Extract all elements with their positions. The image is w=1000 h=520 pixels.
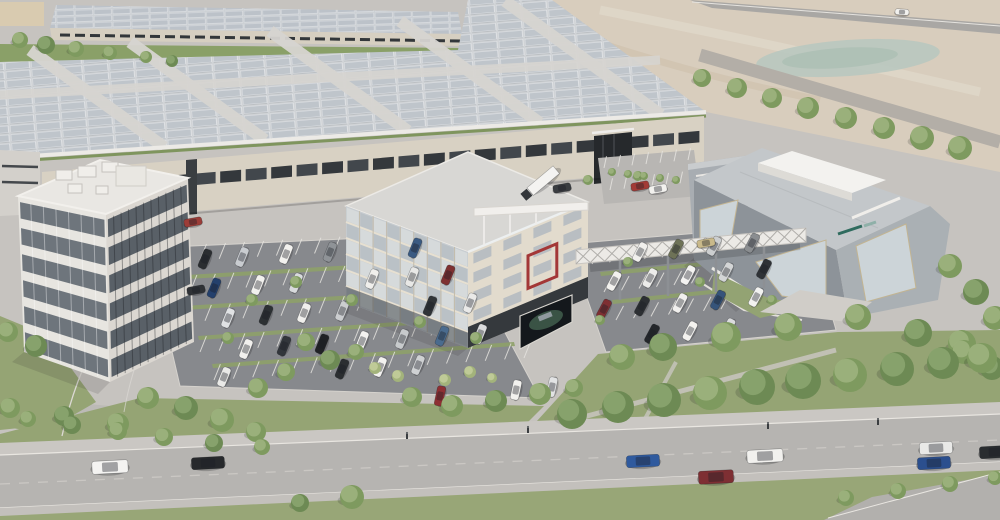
tree-highlight [608,168,614,174]
tree-highlight [640,172,646,178]
tree-highlight [911,127,928,144]
tree-highlight [558,400,579,421]
tree-highlight [166,55,174,63]
tree-highlight [278,363,291,376]
ribbon-window [297,163,318,176]
tree-highlight [989,471,999,481]
hvac-unit [78,166,96,177]
tree-highlight [650,334,670,354]
ribbon-window [551,142,572,155]
tree-highlight [767,295,774,302]
car-cabin [899,10,905,15]
tree-highlight [798,98,813,113]
tree-highlight [13,32,24,43]
tree-highlight [110,422,123,435]
tree-highlight [648,384,672,408]
tree-highlight [69,41,80,52]
tree-highlight [775,314,795,334]
ribbon-window [679,131,700,144]
campus-aerial-rendering: Aerial architectural rendering of an ind… [0,0,1000,520]
ribbon-window [246,168,267,181]
tree-highlight [222,332,230,340]
car-cabin [757,451,773,461]
tree-highlight [138,388,153,403]
pedestrian-head [406,432,408,434]
corner-annex-building [0,2,44,26]
tree-highlight [464,366,472,374]
car-cabin [636,456,651,465]
tree-highlight [610,345,628,363]
hvac-unit [96,186,108,194]
pedestrian-body [406,434,408,439]
tree-highlight [656,174,662,180]
car-cabin [102,462,118,472]
tree-highlight [740,370,765,395]
tree-highlight [583,175,590,182]
tree-highlight [712,323,733,344]
tree-highlight [298,333,311,346]
tree-highlight [487,373,494,380]
tree-highlight [349,344,360,355]
ribbon-window [399,155,420,168]
tree-highlight [249,379,263,393]
tree-highlight [26,336,41,351]
car-cabin [989,447,1000,456]
tree-highlight [928,348,950,370]
pedestrian-body [877,420,879,425]
tree-highlight [939,255,956,272]
tree-highlight [905,320,925,340]
tree-highlight [156,428,169,441]
pedestrian [406,432,408,439]
tree-highlight [891,483,902,494]
ribbon-window [220,170,241,183]
tree-highlight [292,494,305,507]
ribbon-window [322,161,343,174]
tree-highlight [964,280,982,298]
tree-highlight [246,294,254,302]
car-cabin [708,472,724,482]
ribbon-window [195,172,216,185]
tree-highlight [206,434,219,447]
tree-highlight [881,353,905,377]
ribbon-window [526,144,547,157]
tree-highlight [728,79,742,93]
tree-highlight [290,276,298,284]
pedestrian [767,422,769,429]
tree-highlight [595,315,602,322]
tree-highlight [38,36,51,49]
pedestrian-head [877,418,879,420]
tree-highlight [968,344,989,365]
tree [0,398,20,418]
tree-highlight [369,362,377,370]
tree-highlight [566,379,579,392]
pedestrian [877,418,879,425]
tree-highlight [442,396,457,411]
pedestrian-head [767,422,769,424]
tree-highlight [321,351,335,365]
tree-highlight [486,391,501,406]
tree-highlight [403,388,417,402]
tree-highlight [984,307,1000,324]
tree-highlight [64,416,77,429]
car [978,445,1000,461]
car-cabin [201,458,216,467]
tree-highlight [140,51,148,59]
pedestrian [527,426,529,433]
tree-highlight [21,411,32,422]
tree-highlight [104,46,114,56]
pedestrian-head [527,426,529,428]
ribbon-window [271,165,292,178]
tree-highlight [672,176,678,182]
car-cabin [927,458,942,467]
tree-highlight [623,257,630,264]
ribbon-window [500,146,521,159]
tree-highlight [695,277,702,284]
tree-highlight [839,490,850,501]
tree-highlight [943,476,954,487]
penthouse [116,166,146,186]
tree-highlight [1,399,15,413]
tree-highlight [470,332,478,340]
tree-highlight [694,377,718,401]
tree-highlight [255,439,266,450]
pedestrian-body [527,428,529,433]
tree-highlight [392,370,400,378]
tree-highlight [874,118,889,133]
tree-highlight [414,316,422,324]
car-cabin [929,443,944,452]
tree-highlight [603,392,625,414]
tree-highlight [834,359,858,383]
tree-highlight [836,108,851,123]
tree-highlight [846,305,864,323]
tree-highlight [694,69,707,82]
small-parking-lot [598,150,700,204]
tree-highlight [346,294,354,302]
hvac-unit [68,184,82,193]
ribbon-window [348,159,369,172]
tree-highlight [341,486,358,503]
tree-highlight [530,384,545,399]
tree-highlight [175,397,192,414]
annex-window [2,166,38,167]
ribbon-window [653,133,674,146]
scene-canvas [0,0,1000,520]
ribbon-window [373,157,394,170]
annex-window [2,182,38,183]
tree-highlight [624,170,630,176]
hvac-unit [56,170,72,180]
tree-highlight [247,423,261,437]
tree-highlight [949,137,966,154]
pedestrian-body [767,424,769,429]
tree-highlight [439,374,447,382]
tree-highlight [786,364,811,389]
tree-highlight [763,89,777,103]
tree-highlight [211,409,228,426]
